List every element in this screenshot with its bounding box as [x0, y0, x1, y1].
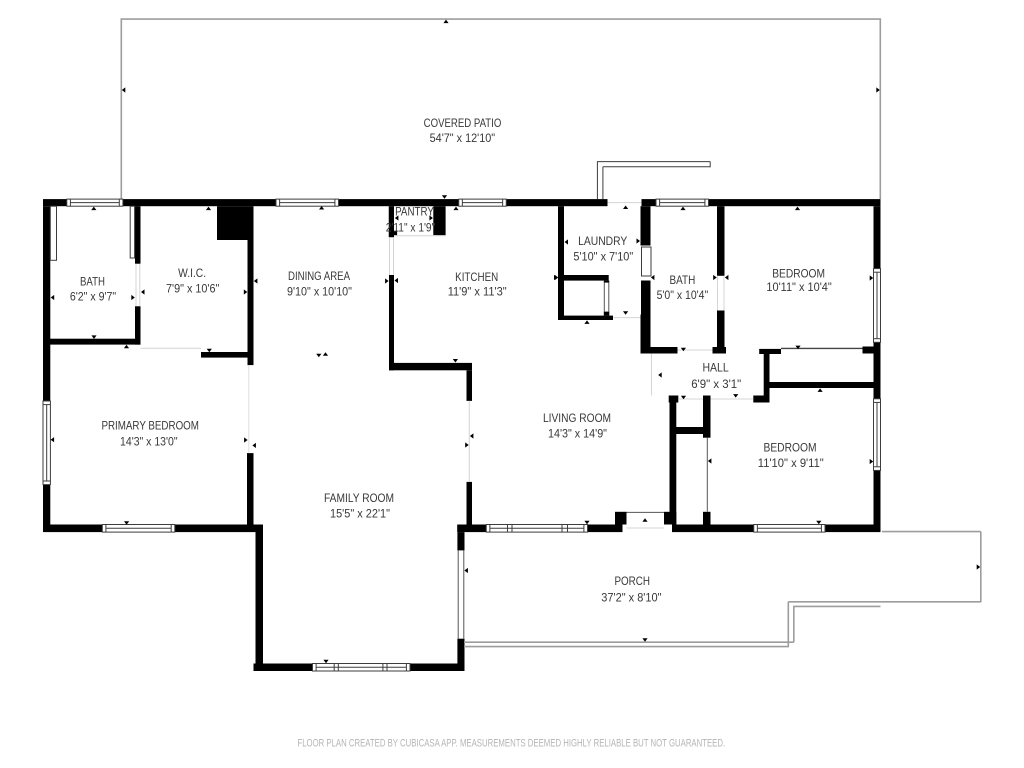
- svg-text:BATH: BATH: [670, 273, 696, 287]
- svg-text:PANTRY: PANTRY: [395, 205, 434, 219]
- svg-text:HALL: HALL: [702, 361, 729, 375]
- svg-text:37'2" x 8'10": 37'2" x 8'10": [601, 591, 661, 605]
- svg-text:6'2" x 9'7": 6'2" x 9'7": [70, 289, 116, 303]
- svg-text:14'3" x 13'0": 14'3" x 13'0": [120, 435, 178, 449]
- svg-text:10'11" x 10'4": 10'11" x 10'4": [766, 280, 831, 294]
- svg-text:11'10" x 9'11": 11'10" x 9'11": [758, 456, 824, 470]
- svg-text:6'9" x 3'1": 6'9" x 3'1": [691, 377, 741, 391]
- svg-text:11'9" x 11'3": 11'9" x 11'3": [448, 284, 507, 298]
- svg-text:7'9" x 10'6": 7'9" x 10'6": [166, 282, 219, 296]
- svg-text:LAUNDRY: LAUNDRY: [578, 234, 627, 248]
- svg-text:14'3" x 14'9": 14'3" x 14'9": [548, 426, 607, 440]
- svg-text:PORCH: PORCH: [614, 574, 650, 588]
- svg-text:FAMILY ROOM: FAMILY ROOM: [324, 491, 394, 505]
- svg-text:DINING AREA: DINING AREA: [288, 269, 350, 283]
- svg-text:KITCHEN: KITCHEN: [455, 270, 498, 284]
- svg-text:PRIMARY BEDROOM: PRIMARY BEDROOM: [101, 418, 199, 432]
- svg-text:9'10" x 10'10": 9'10" x 10'10": [287, 284, 352, 298]
- svg-text:COVERED PATIO: COVERED PATIO: [424, 116, 502, 130]
- svg-text:BEDROOM: BEDROOM: [772, 266, 825, 280]
- svg-text:W.I.C.: W.I.C.: [178, 266, 206, 280]
- svg-text:54'7" x 12'10": 54'7" x 12'10": [430, 131, 496, 145]
- svg-text:BATH: BATH: [80, 274, 105, 288]
- svg-text:15'5" x 22'1": 15'5" x 22'1": [330, 506, 390, 520]
- svg-text:2'11" x 1'9": 2'11" x 1'9": [386, 221, 435, 235]
- svg-text:LIVING ROOM: LIVING ROOM: [543, 411, 611, 425]
- svg-text:BEDROOM: BEDROOM: [764, 441, 817, 455]
- svg-text:FLOOR PLAN CREATED BY CUBICASA: FLOOR PLAN CREATED BY CUBICASA APP. MEAS…: [297, 738, 725, 750]
- svg-text:5'10" x 7'10": 5'10" x 7'10": [573, 249, 633, 263]
- svg-text:5'0" x 10'4": 5'0" x 10'4": [657, 288, 709, 302]
